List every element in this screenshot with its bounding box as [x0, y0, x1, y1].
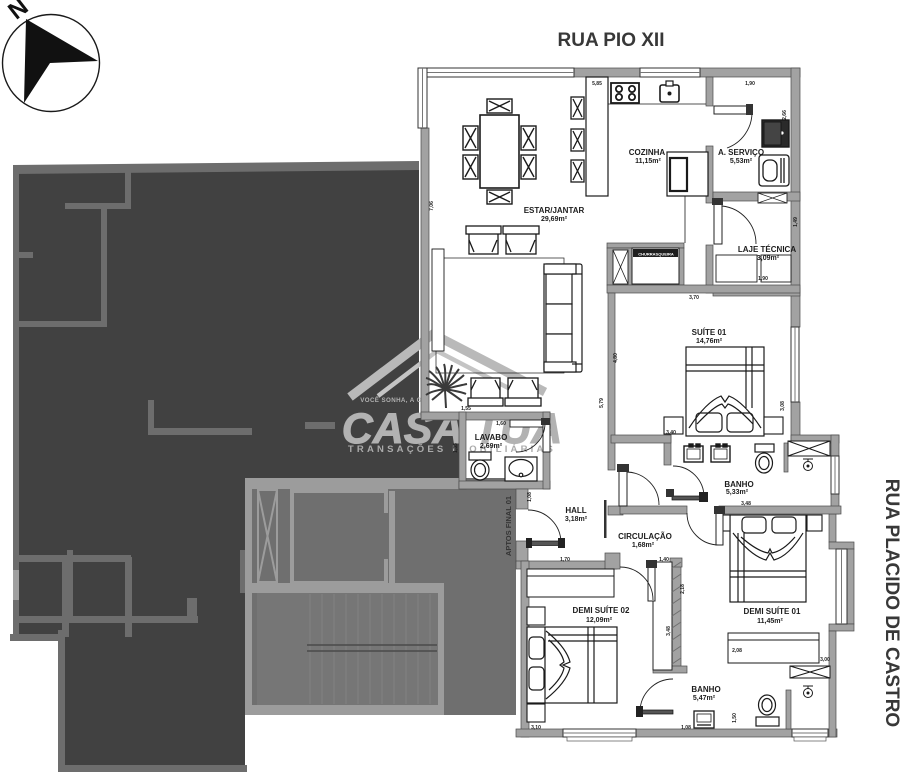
- svg-text:RUA PLÁCIDO DE CASTRO: RUA PLÁCIDO DE CASTRO: [881, 479, 900, 727]
- svg-text:1,60: 1,60: [496, 421, 506, 427]
- svg-text:1,68m²: 1,68m²: [632, 542, 655, 549]
- svg-text:3,10: 3,10: [531, 725, 541, 731]
- svg-text:A. SERVIÇO: A. SERVIÇO: [718, 148, 764, 157]
- svg-text:TRANSAÇÕES IMOBILIÁRIAS: TRANSAÇÕES IMOBILIÁRIAS: [348, 444, 556, 455]
- svg-text:1,49: 1,49: [793, 217, 799, 227]
- svg-text:5,33m²: 5,33m²: [726, 489, 749, 496]
- svg-text:1,08: 1,08: [527, 492, 533, 502]
- svg-text:3,00: 3,00: [820, 657, 830, 663]
- svg-text:DEMI SUÍTE 01: DEMI SUÍTE 01: [744, 607, 801, 616]
- svg-text:CHURRASQUEIRA: CHURRASQUEIRA: [638, 252, 674, 257]
- svg-text:1,50: 1,50: [732, 713, 738, 723]
- svg-text:VOCÊ SONHA, A G: VOCÊ SONHA, A G: [360, 396, 422, 404]
- svg-text:2,69m²: 2,69m²: [480, 443, 503, 450]
- svg-text:12,09m²: 12,09m²: [586, 617, 613, 624]
- svg-text:BANHO: BANHO: [691, 685, 720, 694]
- svg-text:14,76m²: 14,76m²: [696, 338, 723, 345]
- svg-text:HALL: HALL: [565, 506, 586, 515]
- svg-text:2,18: 2,18: [680, 584, 686, 594]
- svg-text:LAJE TÉCNICA: LAJE TÉCNICA: [738, 245, 796, 254]
- svg-text:3,48: 3,48: [666, 626, 672, 636]
- svg-text:5,47m²: 5,47m²: [693, 695, 716, 702]
- svg-text:CIRCULAÇÃO: CIRCULAÇÃO: [618, 532, 672, 541]
- svg-text:11,15m²: 11,15m²: [635, 158, 661, 165]
- svg-text:2,66: 2,66: [782, 110, 788, 120]
- svg-text:29,69m²: 29,69m²: [541, 216, 568, 223]
- svg-text:1,70: 1,70: [560, 557, 570, 563]
- svg-text:3,08: 3,08: [780, 401, 786, 411]
- svg-text:APTOS FINAL 01: APTOS FINAL 01: [504, 496, 513, 556]
- svg-text:1,08: 1,08: [681, 725, 691, 731]
- svg-text:COZINHA: COZINHA: [629, 148, 666, 157]
- svg-text:1,90: 1,90: [758, 276, 768, 282]
- svg-text:ESTAR/JANTAR: ESTAR/JANTAR: [524, 206, 585, 215]
- svg-text:5,79: 5,79: [599, 398, 605, 408]
- svg-text:BANHO: BANHO: [724, 480, 753, 489]
- svg-text:4,80: 4,80: [613, 353, 619, 363]
- svg-text:3,18m²: 3,18m²: [565, 516, 588, 523]
- svg-text:RUA PIO XII: RUA PIO XII: [558, 30, 665, 51]
- svg-text:3,48: 3,48: [741, 501, 751, 507]
- svg-text:3,09m²: 3,09m²: [757, 255, 780, 262]
- svg-text:SUÍTE 01: SUÍTE 01: [692, 328, 727, 337]
- svg-text:5,85: 5,85: [592, 81, 602, 87]
- svg-text:11,45m²: 11,45m²: [757, 618, 783, 625]
- svg-text:7,06: 7,06: [429, 201, 435, 211]
- svg-text:DEMI SUÍTE 02: DEMI SUÍTE 02: [573, 606, 630, 615]
- svg-text:3,40: 3,40: [666, 430, 676, 436]
- svg-text:1,90: 1,90: [745, 81, 755, 87]
- svg-text:LAVABO: LAVABO: [475, 433, 508, 442]
- svg-text:1,35: 1,35: [453, 443, 459, 453]
- svg-text:1,55: 1,55: [461, 406, 471, 412]
- svg-text:5,53m²: 5,53m²: [730, 158, 753, 165]
- svg-text:1,40: 1,40: [659, 557, 669, 563]
- svg-text:2,08: 2,08: [732, 648, 742, 654]
- svg-text:3,70: 3,70: [689, 295, 699, 301]
